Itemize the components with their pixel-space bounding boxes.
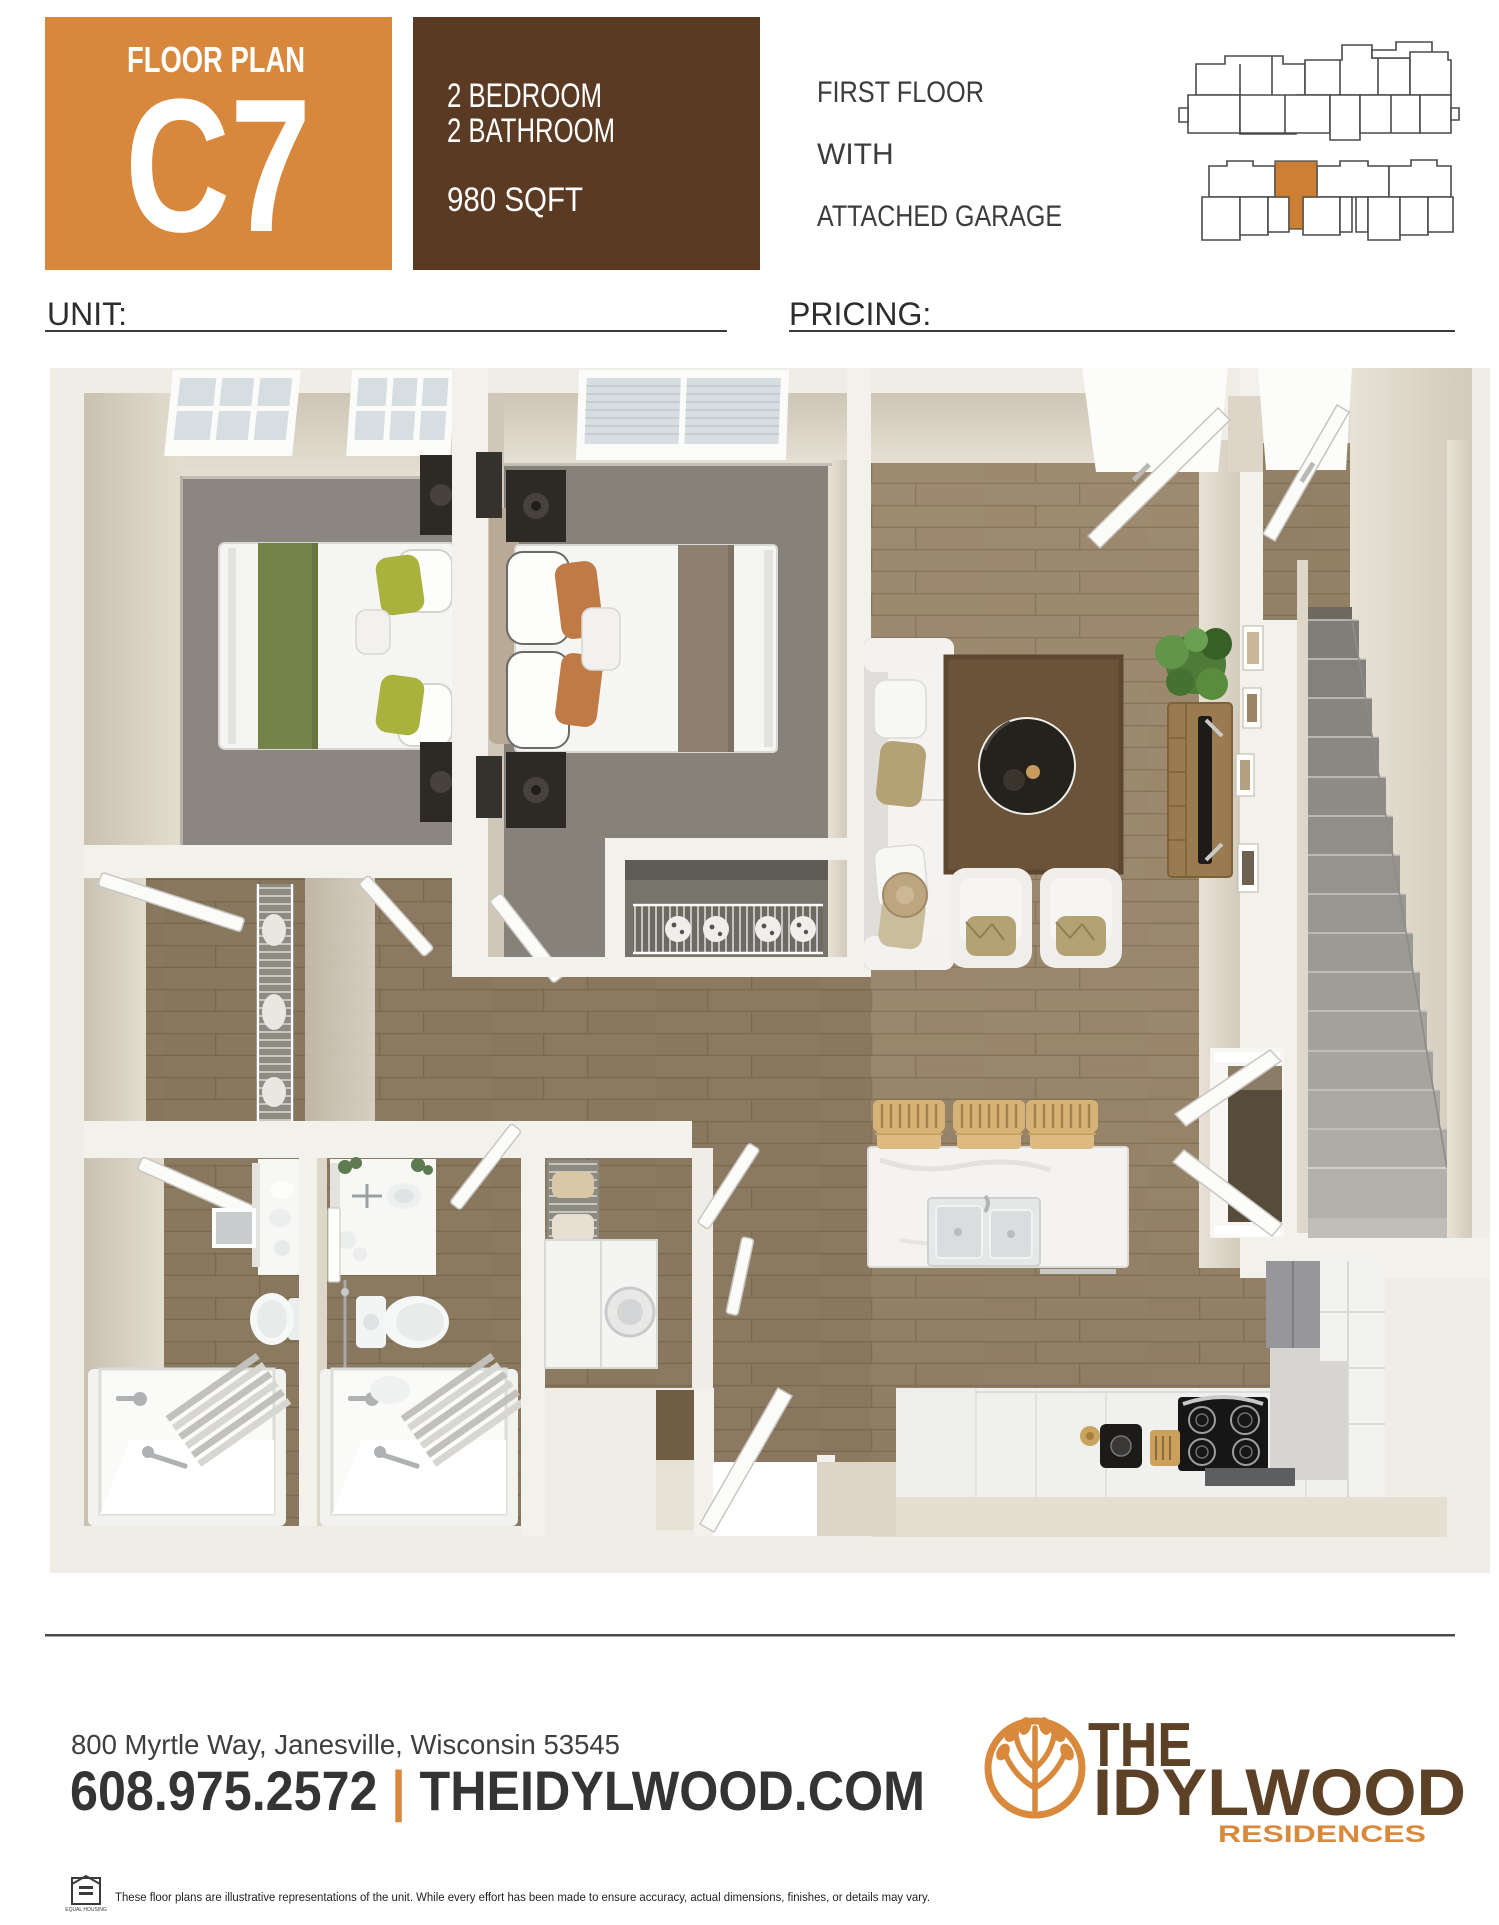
svg-text:980 SQFT: 980 SQFT (447, 181, 583, 219)
svg-text:These floor plans are illustra: These floor plans are illustrative repre… (115, 1890, 930, 1904)
svg-text:C7: C7 (125, 60, 311, 272)
svg-text:IDYLWOOD: IDYLWOOD (1093, 1755, 1466, 1829)
svg-text:PRICING:: PRICING: (789, 296, 931, 332)
svg-text:RESIDENCES: RESIDENCES (1218, 1821, 1426, 1848)
svg-text:800 Myrtle Way, Janesville, Wi: 800 Myrtle Way, Janesville, Wisconsin 53… (71, 1729, 620, 1760)
svg-text:FIRST FLOOR: FIRST FLOOR (817, 76, 984, 109)
svg-text:WITH: WITH (817, 138, 894, 171)
svg-text:EQUAL HOUSING: EQUAL HOUSING (65, 1907, 107, 1913)
svg-text:608.975.2572 | THEIDYLWOOD.COM: 608.975.2572 | THEIDYLWOOD.COM (70, 1759, 925, 1823)
svg-text:2 BATHROOM: 2 BATHROOM (447, 112, 615, 150)
svg-text:2 BEDROOM: 2 BEDROOM (447, 77, 602, 115)
svg-text:ATTACHED GARAGE: ATTACHED GARAGE (817, 200, 1062, 233)
svg-text:UNIT:: UNIT: (47, 296, 127, 332)
